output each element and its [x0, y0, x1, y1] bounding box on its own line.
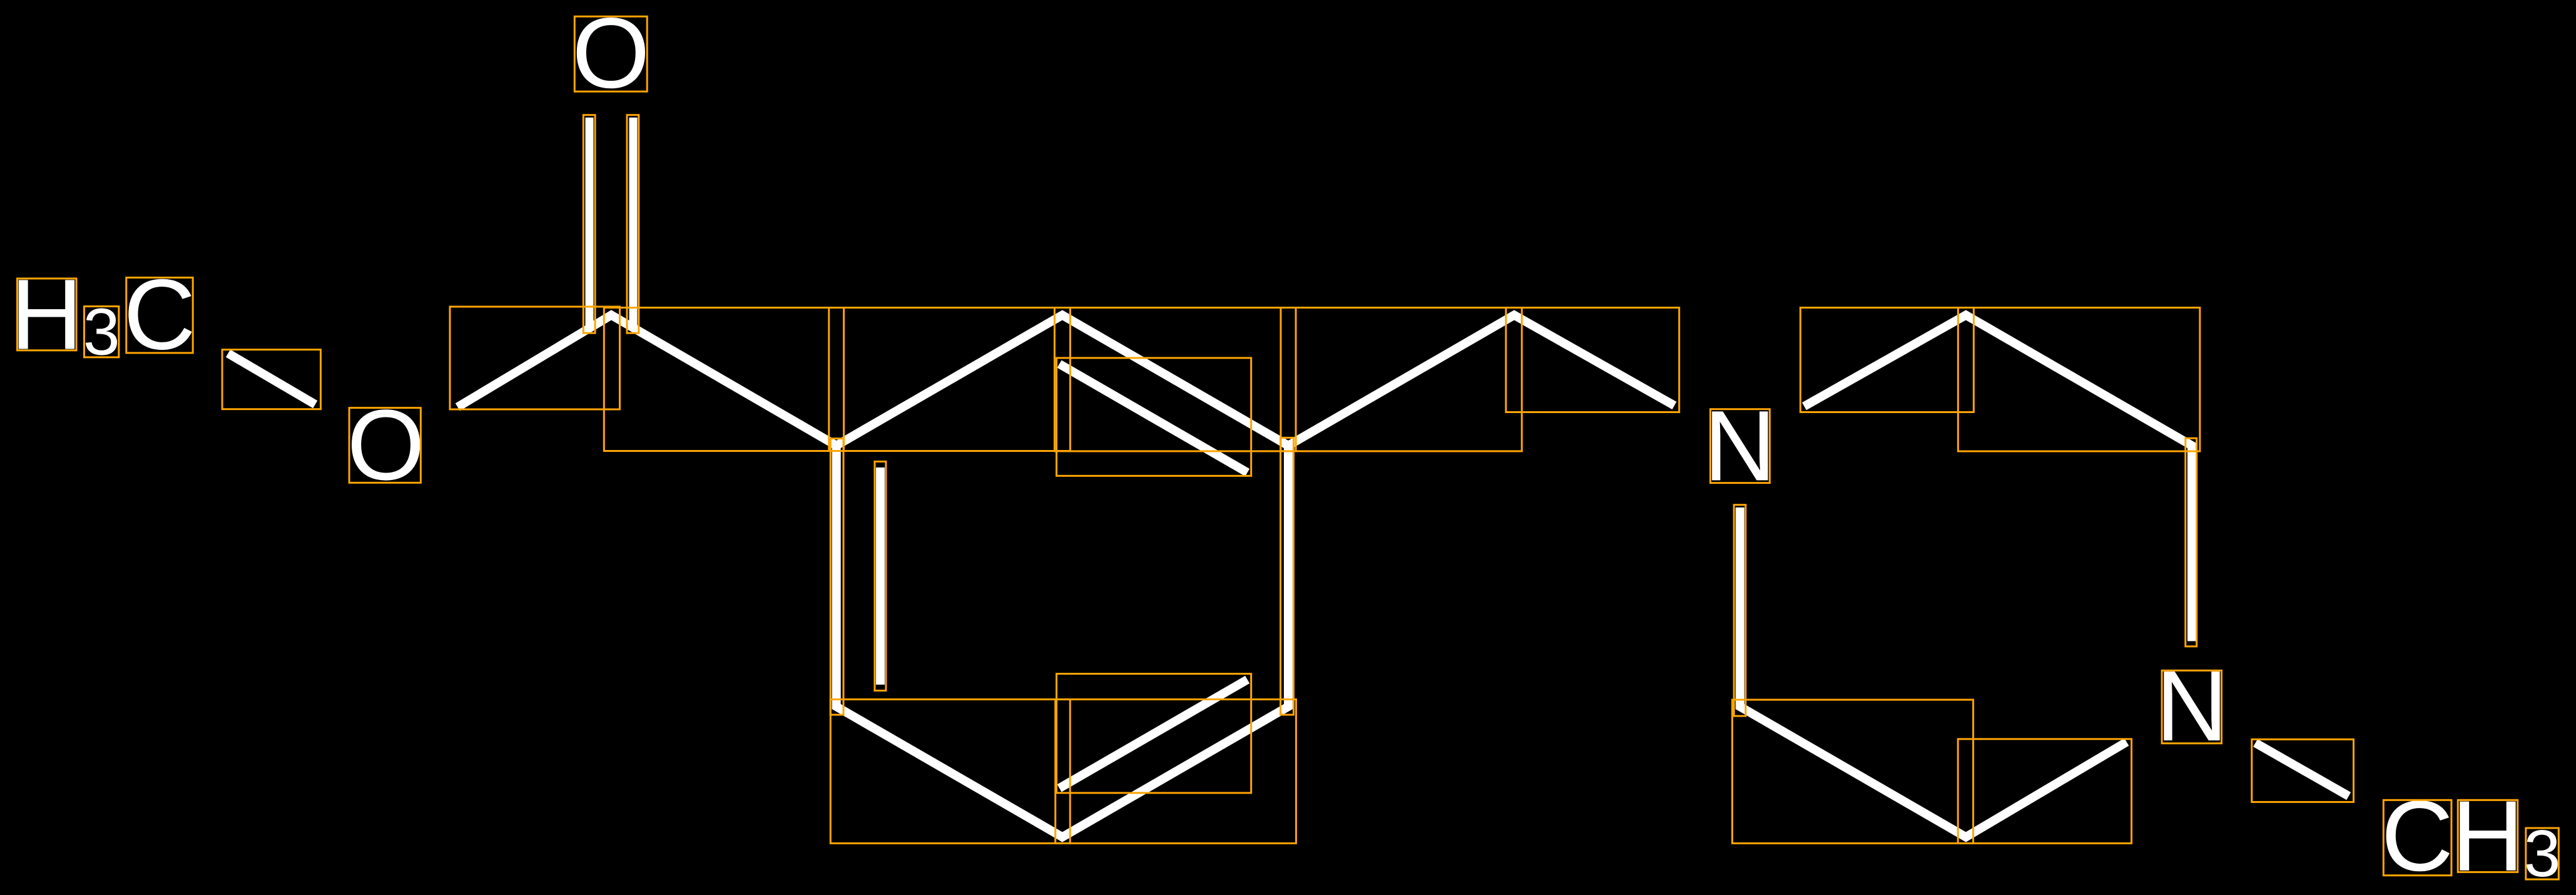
svg-text:N: N — [2156, 650, 2228, 762]
svg-text:N: N — [1704, 389, 1776, 501]
svg-text:H: H — [11, 258, 83, 371]
svg-text:H: H — [2451, 780, 2524, 892]
svg-text:O: O — [347, 389, 424, 501]
